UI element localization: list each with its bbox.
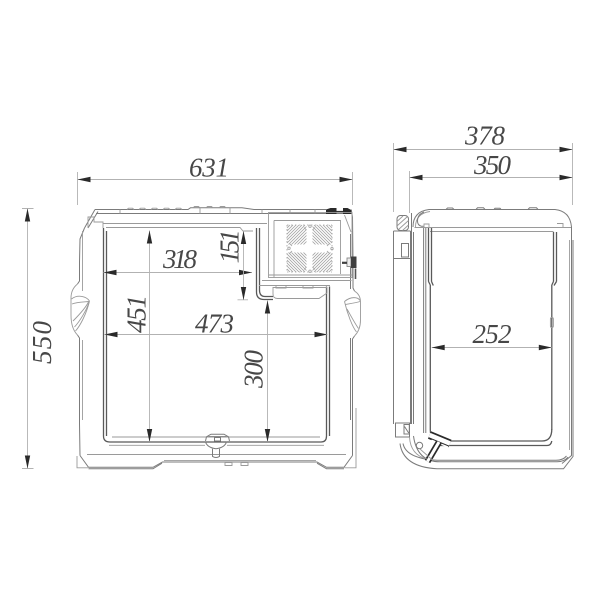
svg-text:300: 300 (239, 350, 269, 390)
svg-text:451: 451 (122, 295, 152, 333)
svg-text:151: 151 (215, 230, 245, 264)
svg-text:631: 631 (189, 153, 229, 183)
svg-text:378: 378 (464, 121, 506, 151)
svg-text:550: 550 (27, 321, 57, 365)
svg-text:252: 252 (473, 319, 512, 349)
svg-text:473: 473 (195, 309, 234, 339)
svg-text:318: 318 (162, 244, 198, 274)
svg-text:350: 350 (473, 150, 512, 180)
